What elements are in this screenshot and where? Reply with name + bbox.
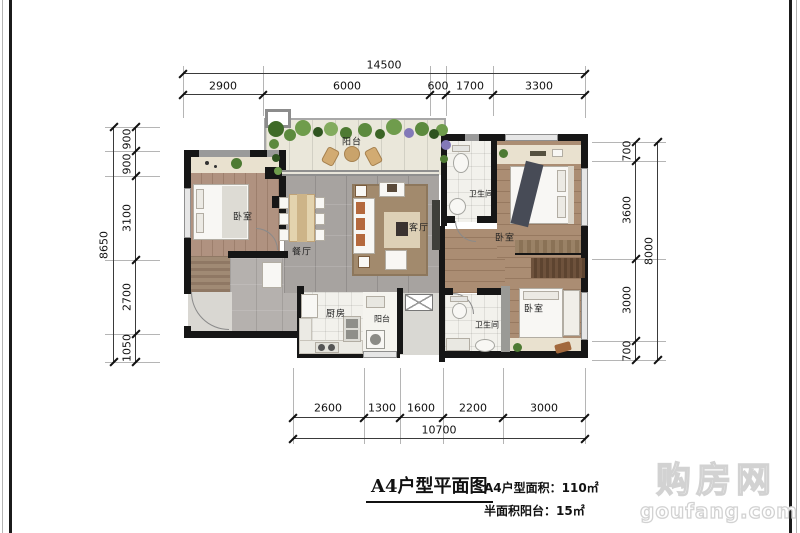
sink-basin [346, 319, 358, 328]
extension-line [293, 368, 294, 444]
wall-segment [558, 134, 588, 141]
wall-segment [184, 252, 191, 294]
wall-segment [265, 167, 282, 179]
pillow [557, 170, 566, 192]
dim-seg: 3300 [525, 80, 553, 93]
dim-seg: 3000 [530, 402, 558, 415]
dimension-line [183, 73, 586, 74]
sofa-cushion [356, 218, 365, 230]
dim-seg: 900 [121, 154, 134, 175]
window [505, 134, 558, 141]
room-label-bath-lower: 卫生间 [475, 320, 499, 331]
wardrobe-slats [531, 258, 585, 278]
watermark-site-domain: goufang.com [640, 501, 792, 521]
sink-basin [346, 330, 358, 339]
plan-balcony-area-text: 半面积阳台：15㎡ [484, 502, 585, 519]
plan-title: A4户型平面图 [366, 472, 493, 503]
dim-seg: 1050 [121, 334, 134, 362]
window [184, 188, 191, 238]
dim-total-top: 14500 [367, 59, 402, 72]
dimension-line [657, 142, 658, 360]
headboard [568, 166, 574, 224]
room-label-bedroom-br: 卧室 [524, 302, 544, 315]
dim-total-right: 8000 [643, 237, 656, 265]
dim-seg: 1300 [368, 402, 396, 415]
stove-burner [318, 344, 325, 351]
dim-seg: 1700 [456, 80, 484, 93]
watermark-site-name: 购房网 [640, 464, 792, 499]
desk-book [552, 149, 563, 157]
dim-seg: 2200 [459, 402, 487, 415]
dimension-line [183, 94, 586, 95]
fridge [301, 294, 318, 318]
wall-segment [184, 331, 304, 338]
pillow [557, 196, 566, 218]
side-table [355, 185, 367, 197]
wall-segment [439, 351, 503, 358]
tea-tray [396, 222, 408, 236]
toilet-bowl [452, 303, 467, 319]
balcony-sliding-door [282, 170, 439, 176]
side-table [358, 256, 370, 268]
dimension-line [293, 417, 586, 418]
left-edge-gray-line [2, 0, 3, 533]
armchair-cushion [387, 184, 397, 192]
dimension-line [113, 127, 114, 362]
dining-chair [279, 213, 289, 225]
dim-seg: 3100 [121, 204, 134, 232]
wall-segment [228, 251, 288, 258]
wall-segment [503, 351, 588, 358]
stove-burner [328, 344, 335, 351]
sink [475, 339, 495, 352]
toilet-bowl [453, 153, 469, 173]
room-label-living: 客厅 [409, 221, 429, 234]
bench-rug [515, 240, 581, 253]
shelf [366, 296, 385, 308]
dim-seg: 1600 [407, 402, 435, 415]
extension-line [585, 368, 586, 444]
wall-segment [441, 134, 447, 226]
decor-dot [214, 165, 217, 168]
armchair [385, 250, 407, 270]
extension-line [400, 368, 401, 444]
room-label-bedroom-master: 卧室 [495, 231, 515, 244]
room-label-balcony-top: 阳台 [342, 135, 362, 148]
table-runner [297, 194, 307, 242]
dim-seg: 600 [428, 80, 449, 93]
dim-seg: 900 [121, 129, 134, 150]
dim-total-bottom: 10700 [422, 424, 457, 437]
window [581, 168, 588, 226]
dimension-line [135, 127, 136, 362]
tv-console [432, 200, 440, 250]
left-edge-black-line [9, 0, 12, 533]
dim-seg: 2900 [209, 80, 237, 93]
dim-seg: 2600 [314, 402, 342, 415]
wall-segment [397, 288, 403, 354]
extension-line [364, 368, 365, 444]
floor-plan-page: 卧室 阳台 餐厅 客厅 卫生间 卧室 厨房 阳台 卫生间 卧室 14500 29… [0, 0, 800, 533]
dining-chair [315, 229, 325, 241]
dim-seg: 3000 [621, 286, 634, 314]
extension-line [503, 368, 504, 444]
toilet [452, 145, 470, 152]
washer-drum [370, 334, 381, 345]
sofa-cushion [356, 202, 365, 214]
pillow [196, 213, 204, 233]
dimension-line [293, 438, 586, 439]
plant-icon [231, 158, 242, 169]
wall-pillar [501, 286, 510, 352]
dim-seg: 700 [621, 141, 634, 162]
entry-cabinet [262, 262, 282, 288]
dim-seg: 700 [621, 341, 634, 362]
dim-seg: 2700 [121, 283, 134, 311]
desk-decor [530, 151, 546, 156]
room-label-kitchen: 厨房 [326, 307, 346, 320]
dining-chair [279, 229, 289, 241]
dimension-line [635, 142, 636, 360]
dim-seg: 3600 [621, 196, 634, 224]
entry-bench [190, 256, 230, 292]
dim-total-left: 8650 [98, 231, 111, 259]
wall-segment [439, 288, 453, 295]
pillow [196, 189, 204, 209]
plant-icon [513, 343, 522, 352]
sofa-cushion [356, 234, 365, 246]
watermark: 购房网 goufang.com [640, 464, 792, 521]
decor-dot [205, 161, 209, 165]
dining-chair [315, 197, 325, 209]
dining-chair [315, 213, 325, 225]
wall-segment [491, 134, 497, 220]
closet [563, 290, 580, 336]
dining-chair [279, 197, 289, 209]
window [581, 292, 588, 340]
sink [449, 198, 466, 215]
plan-area-text: A4户型面积：110㎡ [484, 479, 599, 496]
room-label-bedroom-tl: 卧室 [233, 210, 253, 223]
wall-segment [477, 216, 497, 223]
vent-shaft [405, 294, 433, 311]
wall-segment [477, 288, 503, 295]
right-edge-black-line [789, 0, 792, 533]
plant-icon [499, 149, 508, 158]
balcony-table [344, 146, 360, 162]
window [363, 351, 397, 358]
room-label-dining: 餐厅 [292, 245, 312, 258]
shower-tray [446, 338, 470, 351]
room-label-balcony-small: 阳台 [374, 314, 390, 325]
room-label-bath-upper: 卫生间 [469, 189, 493, 200]
wall-segment [250, 150, 267, 157]
pillow [523, 291, 559, 300]
plant-row [268, 121, 284, 137]
right-edge-gray-line [796, 0, 797, 533]
toilet [450, 296, 468, 302]
wall-segment [441, 216, 455, 223]
dim-seg: 6000 [333, 80, 361, 93]
